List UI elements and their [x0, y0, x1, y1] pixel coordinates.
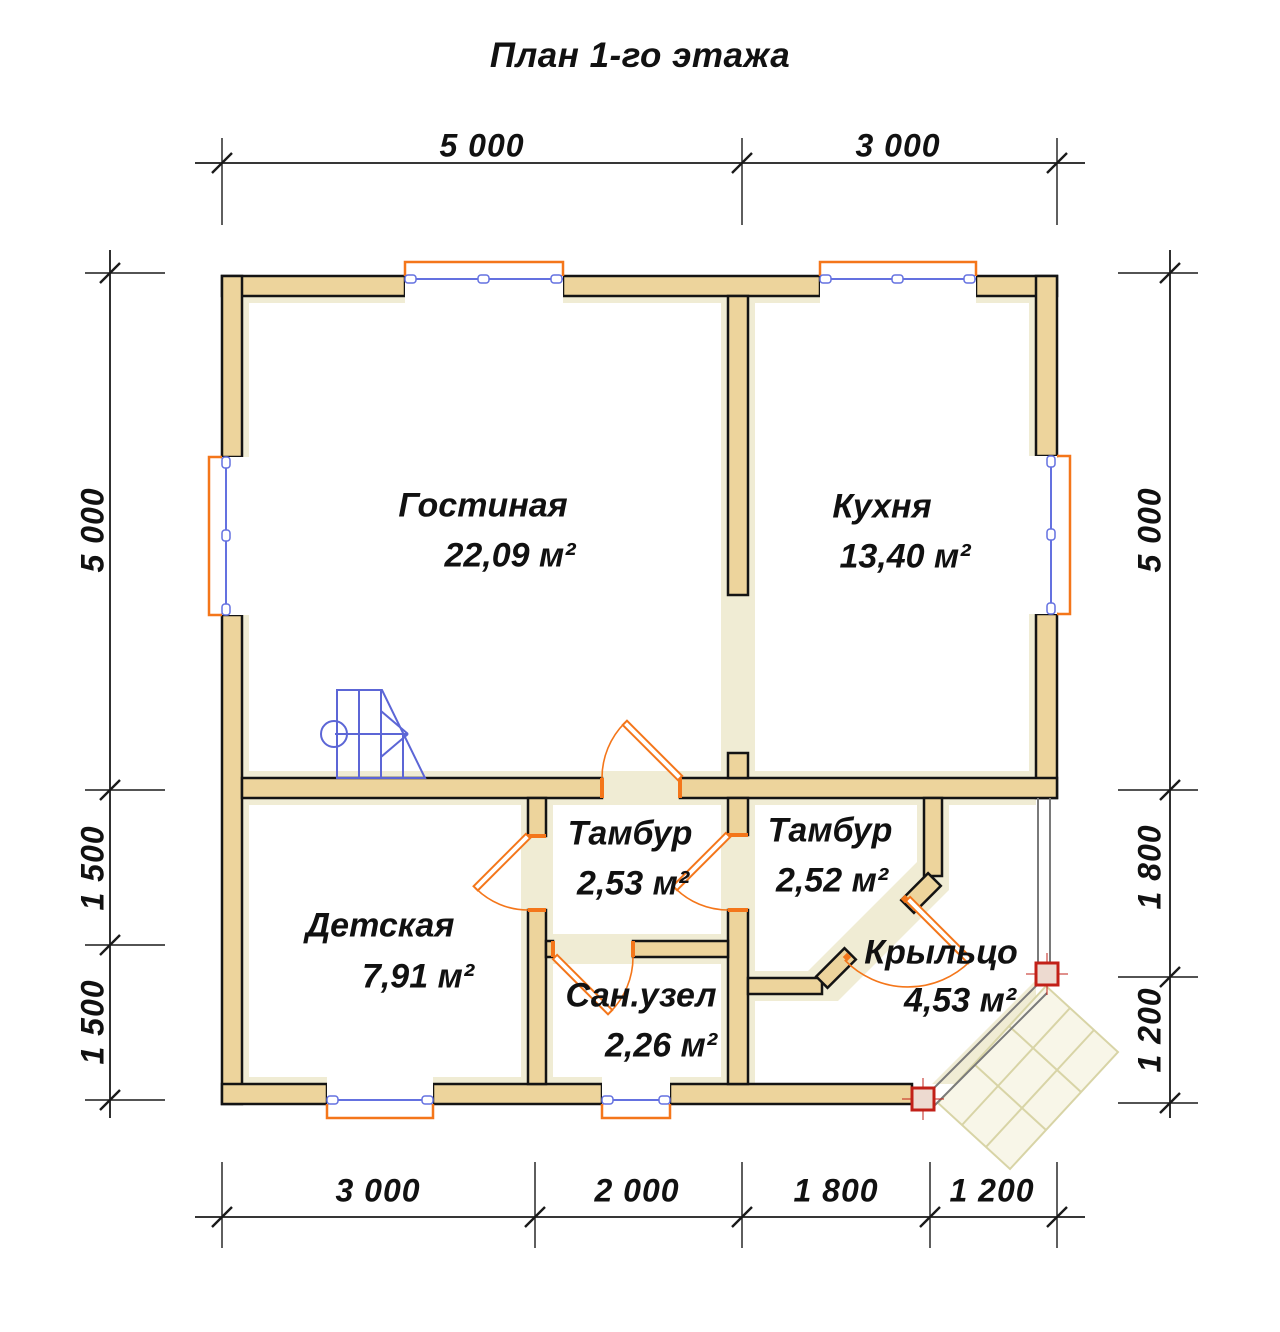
room-label-living-area: 22,09 м² — [444, 537, 575, 576]
window-right-kitchen — [1029, 456, 1070, 614]
room-label-tambour2-area: 2,52 м² — [776, 862, 888, 901]
room-label-porch-name: Крыльцо — [864, 934, 1017, 973]
dim-bottom-3: 1 800 — [793, 1173, 878, 1210]
room-label-kitchen-area: 13,40 м² — [839, 538, 970, 577]
room-label-living-name: Гостиная — [398, 487, 567, 526]
floor-plan-page: План 1-го этажа 5 000 3 000 3 000 2 000 … — [0, 0, 1280, 1332]
dim-bottom-1: 3 000 — [335, 1173, 420, 1210]
window-top-living — [405, 262, 563, 303]
room-label-kitchen-name: Кухня — [832, 488, 931, 527]
floor-plan-drawing — [0, 0, 1280, 1332]
window-bottom-bathroom — [602, 1077, 670, 1118]
page-title: План 1-го этажа — [490, 36, 790, 76]
room-label-tambour1-area: 2,53 м² — [577, 865, 689, 904]
room-label-bathroom-area: 2,26 м² — [605, 1027, 717, 1066]
room-label-children-name: Детская — [306, 907, 455, 946]
window-left-living — [209, 457, 249, 615]
window-bottom-children — [327, 1077, 433, 1118]
dim-left-3: 1 500 — [75, 979, 112, 1064]
dim-top-1: 5 000 — [439, 128, 524, 165]
room-label-porch-area: 4,53 м² — [904, 982, 1016, 1021]
room-label-children-area: 7,91 м² — [362, 958, 474, 997]
dim-left-2: 1 500 — [75, 825, 112, 910]
dim-left-1: 5 000 — [75, 487, 112, 572]
dim-top-2: 3 000 — [855, 128, 940, 165]
window-top-kitchen — [820, 262, 976, 303]
room-label-tambour1-name: Тамбур — [568, 815, 693, 854]
dim-right-2: 1 800 — [1132, 824, 1169, 909]
dim-right-1: 5 000 — [1132, 487, 1169, 572]
dim-right-3: 1 200 — [1132, 987, 1169, 1072]
room-label-bathroom-name: Сан.узел — [566, 977, 717, 1016]
dim-bottom-4: 1 200 — [949, 1173, 1034, 1210]
dim-bottom-2: 2 000 — [594, 1173, 679, 1210]
porch-column-top — [1036, 963, 1058, 985]
room-label-tambour2-name: Тамбур — [768, 812, 893, 851]
porch-column-bottom — [912, 1088, 934, 1110]
